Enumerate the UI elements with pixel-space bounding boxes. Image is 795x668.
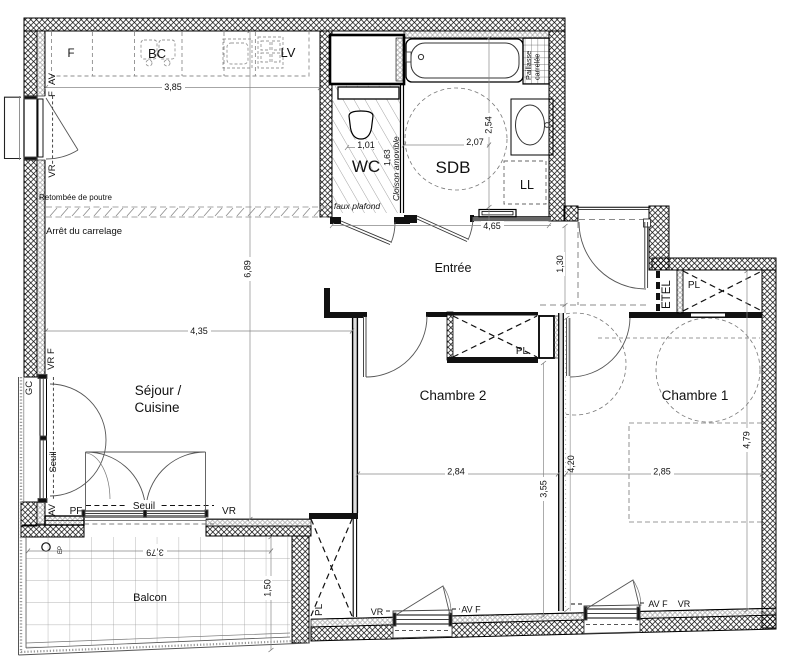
svg-text:4,65: 4,65 bbox=[483, 221, 501, 231]
svg-text:2,54: 2,54 bbox=[484, 116, 494, 134]
svg-text:2,84: 2,84 bbox=[447, 467, 465, 477]
svg-text:carrelée: carrelée bbox=[533, 54, 542, 80]
svg-text:AV: AV bbox=[47, 503, 58, 516]
svg-text:1,30: 1,30 bbox=[555, 255, 565, 273]
svg-text:GC: GC bbox=[24, 381, 35, 395]
svg-text:3,55: 3,55 bbox=[539, 480, 549, 498]
svg-text:AV: AV bbox=[47, 72, 58, 85]
svg-text:Chambre 2: Chambre 2 bbox=[420, 388, 487, 403]
svg-text:VR: VR bbox=[371, 607, 384, 617]
svg-text:PL: PL bbox=[516, 346, 529, 357]
svg-text:VR: VR bbox=[222, 506, 236, 517]
svg-text:3,79: 3,79 bbox=[146, 548, 164, 558]
svg-text:WC: WC bbox=[352, 157, 380, 176]
svg-text:VR F: VR F bbox=[46, 348, 57, 370]
svg-text:faux plafond: faux plafond bbox=[334, 201, 381, 211]
svg-text:1,50: 1,50 bbox=[263, 579, 273, 597]
svg-text:Entrée: Entrée bbox=[435, 261, 472, 275]
svg-text:VR: VR bbox=[678, 599, 691, 609]
svg-text:Chambre 1: Chambre 1 bbox=[662, 388, 729, 403]
svg-text:PF: PF bbox=[70, 506, 83, 517]
svg-text:4,35: 4,35 bbox=[190, 326, 208, 336]
svg-text:Cuisine: Cuisine bbox=[134, 400, 179, 415]
svg-text:Arrêt du carrelage: Arrêt du carrelage bbox=[46, 226, 122, 237]
svg-text:6,89: 6,89 bbox=[243, 260, 253, 278]
svg-text:F: F bbox=[47, 91, 58, 97]
svg-text:4,79: 4,79 bbox=[742, 431, 752, 449]
svg-text:LV: LV bbox=[281, 45, 296, 60]
svg-text:PL: PL bbox=[314, 603, 325, 616]
svg-text:3,85: 3,85 bbox=[164, 82, 182, 92]
svg-text:VR: VR bbox=[47, 164, 58, 177]
svg-text:EP: EP bbox=[58, 546, 64, 554]
svg-text:AV F: AV F bbox=[648, 599, 668, 609]
svg-text:LL: LL bbox=[520, 178, 534, 192]
svg-text:2,07: 2,07 bbox=[466, 137, 484, 147]
svg-text:F: F bbox=[67, 48, 74, 60]
svg-text:Retombée de poutre: Retombée de poutre bbox=[39, 193, 112, 202]
svg-text:Séjour /: Séjour / bbox=[135, 383, 182, 398]
svg-text:Cloison amovible: Cloison amovible bbox=[391, 136, 401, 201]
svg-text:Seuil: Seuil bbox=[48, 451, 59, 472]
svg-text:4,20: 4,20 bbox=[566, 455, 576, 473]
svg-text:1,63: 1,63 bbox=[382, 149, 392, 166]
svg-text:ETEL: ETEL bbox=[661, 280, 673, 309]
svg-text:SDB: SDB bbox=[436, 158, 471, 177]
svg-text:PL: PL bbox=[688, 280, 701, 291]
svg-text:AV F: AV F bbox=[461, 605, 481, 615]
svg-text:Balcon: Balcon bbox=[133, 592, 167, 604]
svg-text:1,01: 1,01 bbox=[357, 140, 375, 150]
svg-text:BC: BC bbox=[148, 46, 166, 61]
svg-text:Seuil: Seuil bbox=[133, 501, 155, 512]
svg-text:2,85: 2,85 bbox=[653, 467, 671, 477]
